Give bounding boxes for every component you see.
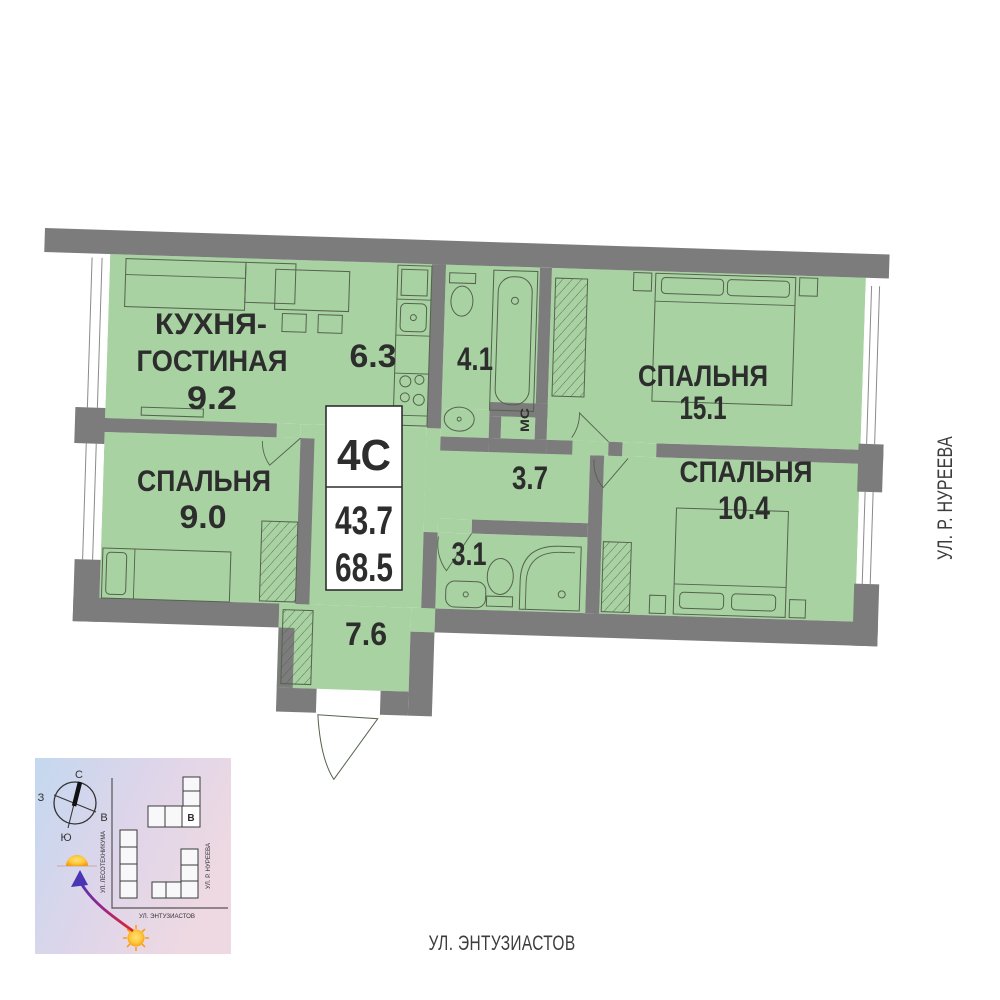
wardrobe bbox=[281, 610, 313, 685]
wardrobe bbox=[259, 521, 297, 602]
compass-west: З bbox=[38, 792, 45, 804]
room-label-bedroom-large: СПАЛЬНЯ bbox=[638, 360, 768, 393]
door-opening bbox=[277, 423, 301, 438]
entry-hall-furniture bbox=[281, 610, 313, 685]
street-bottom-label: УЛ. ЭНТУЗИАСТОВ bbox=[429, 932, 576, 955]
room-area-entry-hall: 7.6 bbox=[345, 616, 387, 652]
compass-east: В bbox=[100, 812, 107, 824]
closet-mc-label: МС bbox=[518, 408, 532, 432]
room-entry-hall-fill2 bbox=[411, 608, 436, 633]
door-opening bbox=[622, 442, 656, 457]
minimap-street-left: УЛ. ЛЕСОТЕХНИКУМА bbox=[100, 830, 107, 893]
room-bathroom-main-fill bbox=[442, 265, 540, 412]
room-label-kitchen-living-2: ГОСТИНАЯ bbox=[137, 345, 288, 378]
room-label-bedroom-right: СПАЛЬНЯ bbox=[680, 456, 813, 489]
floorplan-svg: КУХНЯ- ГОСТИНАЯ 9.2 6.3 4.1 СПАЛЬНЯ 15.1… bbox=[0, 0, 1000, 1000]
room-label-kitchen-living-1: КУХНЯ- bbox=[155, 308, 267, 341]
wardrobe bbox=[552, 278, 588, 397]
minimap-street-right: УЛ. Р. НУРЕЕВА bbox=[205, 842, 212, 889]
door-opening bbox=[572, 441, 608, 456]
wardrobe bbox=[601, 542, 631, 613]
compass-north: С bbox=[75, 769, 83, 781]
building-label: В bbox=[187, 813, 194, 824]
room-area-hallway: 3.7 bbox=[512, 460, 548, 496]
window-left-2 bbox=[77, 443, 105, 560]
room-bathroom-main-fill2 bbox=[441, 409, 490, 438]
compass-south: Ю bbox=[60, 832, 71, 844]
window-right-2 bbox=[856, 492, 881, 585]
room-area-kitchen-living: 9.2 bbox=[187, 380, 237, 416]
room-area-bedroom-right: 10.4 bbox=[718, 490, 770, 526]
door-opening bbox=[438, 518, 472, 533]
street-right-label: УЛ. Р. НУРЕЕВА bbox=[934, 436, 957, 560]
window-left-1 bbox=[81, 257, 110, 408]
room-area-bathroom-small: 3.1 bbox=[452, 536, 487, 572]
unit-type: 4С bbox=[337, 431, 391, 480]
floorplan-screenshot: КУХНЯ- ГОСТИНАЯ 9.2 6.3 4.1 СПАЛЬНЯ 15.1… bbox=[0, 0, 1000, 1000]
room-area-bathroom-main: 4.1 bbox=[457, 341, 493, 377]
unit-living-area: 43.7 bbox=[335, 499, 393, 543]
minimap: С З В Ю УЛ. ЛЕСОТЕХНИКУМА УЛ. Р. НУРЕЕВА… bbox=[35, 758, 231, 954]
room-label-bedroom-left: СПАЛЬНЯ bbox=[137, 465, 271, 498]
unit-total-area: 68.5 bbox=[335, 546, 393, 590]
unit-card: 4С 43.7 68.5 bbox=[326, 406, 402, 590]
minimap-street-bottom: УЛ. ЭНТУЗИАСТОВ bbox=[139, 913, 195, 920]
room-area-kitchen-zone: 6.3 bbox=[350, 338, 397, 374]
room-area-bedroom-large: 15.1 bbox=[680, 390, 727, 426]
room-area-bedroom-left: 9.0 bbox=[180, 499, 227, 535]
entrance-door bbox=[316, 715, 378, 781]
building-block bbox=[181, 849, 198, 898]
